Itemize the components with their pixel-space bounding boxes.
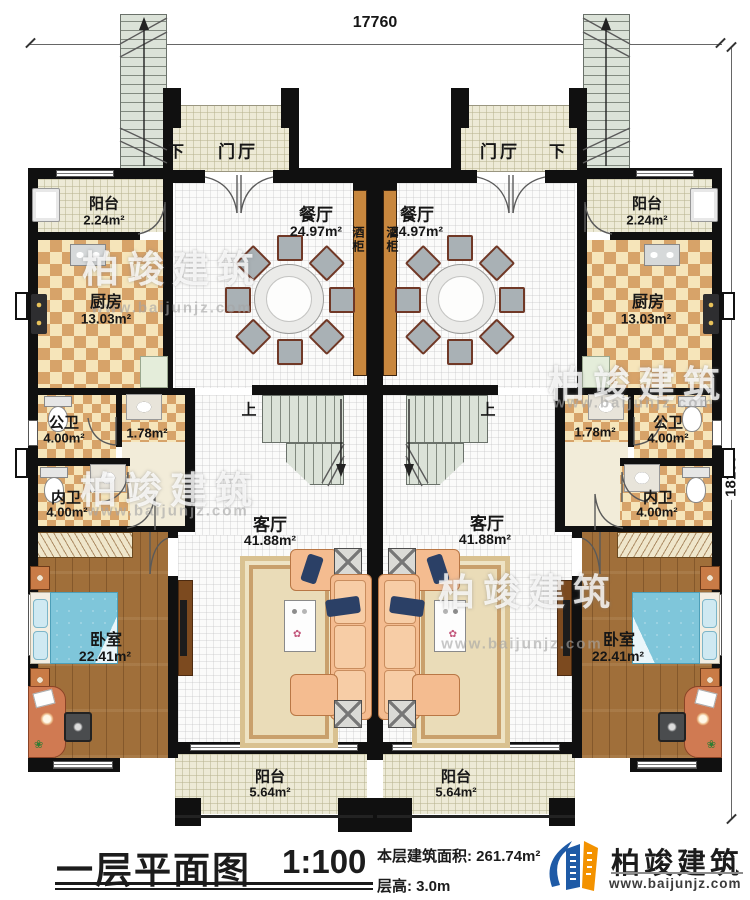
- public-bath-door: [88, 417, 116, 445]
- label-wine-cabinet-left: 酒柜: [352, 226, 364, 254]
- label-balcony-top-area-left: 2.24m²: [83, 214, 124, 227]
- label-kitchen-right: 厨房: [632, 295, 664, 311]
- entry-door-arc: [513, 177, 545, 213]
- brand-website: www.baijunjz.com: [609, 876, 742, 891]
- flue-box-kitchen: [722, 292, 735, 320]
- brand-divider: [611, 872, 743, 874]
- watermark-url: www.baijunjz.com: [441, 636, 602, 653]
- watermark-url: www.baijunjz.com: [87, 503, 248, 520]
- interior-stair-arrowhead: [404, 464, 414, 477]
- label-private-bath-left: 内卫: [51, 491, 81, 506]
- title-underline: [55, 882, 373, 885]
- scale-text: 1:100: [282, 843, 366, 881]
- label-balcony-bottom-left: 阳台: [255, 770, 285, 785]
- label-dining-right: 餐厅: [400, 207, 434, 224]
- label-public-bath-area-left: 4.00m²: [43, 432, 84, 445]
- label-balcony-top-area-right: 2.24m²: [626, 214, 667, 227]
- label-bedroom-right: 卧室: [603, 633, 635, 649]
- dimension-line-right: [731, 48, 732, 820]
- label-public-bath-left: 公卫: [49, 416, 79, 431]
- floor-height-text: 层高: 3.0m: [377, 875, 450, 896]
- label-stair-down-left: 下: [168, 145, 184, 161]
- label-kitchen-area-left: 13.03m²: [81, 312, 131, 326]
- unit-left: ❀ ✿: [28, 0, 375, 840]
- floor-area-text: 本层建筑面积: 261.74m²: [377, 845, 540, 866]
- entry-door-arc: [241, 177, 273, 213]
- title-underline-thin: [55, 888, 373, 890]
- brand-logo-icon: [538, 833, 610, 895]
- label-balcony-top-left: 阳台: [89, 197, 119, 212]
- label-kitchen-left: 厨房: [90, 295, 122, 311]
- entry-door-arc: [205, 177, 237, 213]
- watermark-url: www.baijunjz.com: [553, 395, 714, 412]
- label-dining-area-left: 24.97m²: [290, 224, 342, 238]
- hall-door: [595, 494, 623, 530]
- label-private-bath-right: 内卫: [643, 491, 673, 506]
- flue-box-bath: [15, 448, 28, 478]
- label-public-bath-right: 公卫: [653, 416, 683, 431]
- label-private-bath-area-left: 4.00m²: [46, 506, 87, 519]
- watermark-text: 柏竣建筑: [82, 239, 262, 293]
- entry-door-arc: [477, 177, 509, 213]
- label-dining-left: 餐厅: [299, 207, 333, 224]
- kitchen-door-arc: [138, 204, 165, 234]
- page-title: 一层平面图: [56, 840, 251, 894]
- label-bedroom-left: 卧室: [90, 633, 122, 649]
- label-living-area-right: 41.88m²: [459, 532, 511, 546]
- floorplan-canvas: 17760 18100: [0, 0, 750, 900]
- label-bedroom-area-left: 22.41m²: [79, 649, 131, 663]
- kitchen-door-arc: [585, 204, 612, 234]
- watermark-text: 柏竣建筑: [438, 562, 618, 616]
- interior-stair-arrowhead: [336, 464, 346, 477]
- label-wash-area-right: 1.78m²: [574, 426, 615, 439]
- label-stair-down-right: 下: [549, 145, 565, 161]
- bedroom-door-arc: [150, 538, 168, 574]
- flue-box-bath: [722, 448, 735, 478]
- label-entry-right: 门厅: [480, 144, 520, 161]
- label-stair-up-right: 上: [480, 403, 495, 418]
- label-kitchen-area-right: 13.03m²: [621, 312, 671, 326]
- label-balcony-bottom-area-right: 5.64m²: [435, 786, 476, 799]
- label-living-right: 客厅: [470, 516, 504, 533]
- exterior-stair-arrowhead: [601, 17, 611, 30]
- label-private-bath-area-right: 4.00m²: [636, 506, 677, 519]
- label-bedroom-area-right: 22.41m²: [592, 649, 644, 663]
- flue-box-kitchen: [15, 292, 28, 320]
- label-living-area-left: 41.88m²: [244, 533, 296, 547]
- label-balcony-bottom-right: 阳台: [441, 770, 471, 785]
- label-balcony-bottom-area-left: 5.64m²: [249, 786, 290, 799]
- label-balcony-top-right: 阳台: [632, 197, 662, 212]
- door-and-stair-symbols: [28, 0, 375, 840]
- label-public-bath-area-right: 4.00m²: [647, 432, 688, 445]
- label-wine-cabinet-right: 酒柜: [386, 226, 398, 254]
- exterior-stair-arrowhead: [139, 17, 149, 30]
- label-living-left: 客厅: [253, 517, 287, 534]
- label-wash-area-left: 1.78m²: [126, 427, 167, 440]
- label-stair-up-left: 上: [241, 403, 256, 418]
- label-entry-left: 门厅: [218, 144, 258, 161]
